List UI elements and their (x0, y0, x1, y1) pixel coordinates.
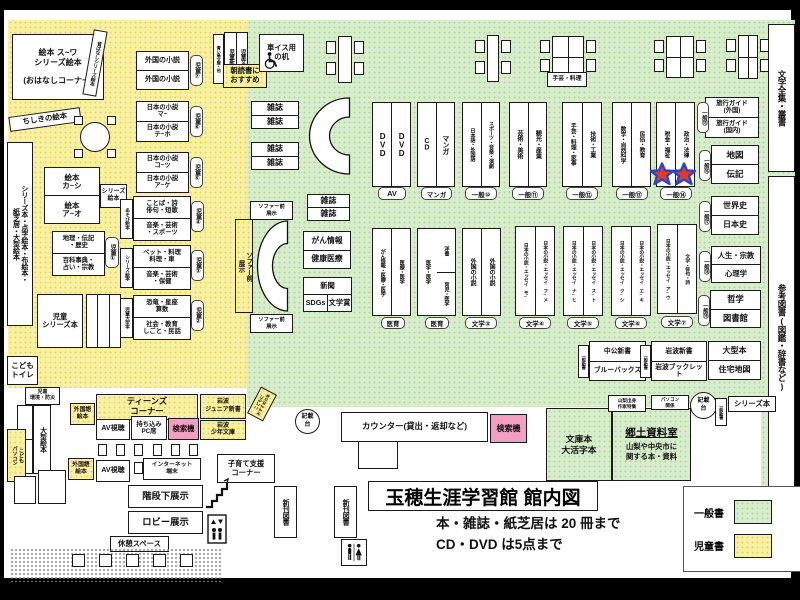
legend: 一般書 児童書 (683, 486, 800, 572)
jinsei-shinri-shelf: 人生・宗教心理学 (711, 246, 761, 283)
series-ehon-side-label-2: シリーズ絵本 (120, 248, 133, 288)
counter-bar: カウンター(貸出・返却など) (341, 412, 488, 442)
legend-swatch-general (734, 500, 772, 524)
chair-square (654, 59, 664, 72)
kaidan-shita-tenji: 階段下展示 (128, 485, 203, 508)
gaikoku-bungaku-shelf: 外国の小説外国の小説 (462, 228, 501, 316)
kamishibai-ogata-strip: シリーズ本・点字絵本・布絵本・紙芝居・大型絵本 (7, 142, 33, 326)
gen16-bubble: 一般⑯ (699, 150, 711, 181)
pet-ryori-shelf: ペット・料理料理・車音楽・芸術・保健 (133, 245, 191, 290)
chair-square (74, 116, 83, 125)
jido2-bubble: 児童② (191, 300, 204, 331)
library-floor-map: 絵本 ス~ワシリーズ絵本 (おはなしコーナー)昔ばなしシリーズ絵本ちしきの絵本シ… (0, 0, 800, 600)
gan-joho-kenko-shelf: がん情報健康医療 (303, 231, 351, 269)
ogata-ehon-strip: 大型絵本 (33, 405, 51, 474)
med-shelf-2: 医学・医学洋書育児・医学 (417, 228, 456, 316)
gen11-shelf: 芸術・美術観光・産業 (509, 102, 547, 187)
ogata-jutaku-shelf: 大型本住宅地図 (708, 341, 761, 380)
wc-icon (341, 539, 367, 566)
jido-kankyo-bosai: 児童環境・防災 (25, 387, 60, 405)
gen12-shelf: 手芸・料理・家事技術・工業 (562, 102, 602, 187)
chair-square (72, 554, 85, 567)
reading-table-1 (326, 36, 364, 83)
chair-square (326, 41, 336, 54)
stairs-icon (204, 478, 230, 510)
loan-limit-note-books: 本・雑誌・紙芝居は 20 冊まで (436, 512, 621, 532)
gen15-bubble: 一般⑮ (697, 102, 709, 133)
iwanami-shonen-bunko: 岩波少年文庫 (200, 420, 246, 440)
chair-square (654, 40, 664, 53)
bun6-bubble: 文学⑥ (615, 317, 647, 329)
chair-square (180, 554, 193, 567)
chair-square (475, 40, 485, 53)
legend-label-general: 一般書 (694, 505, 724, 520)
med2-bubble: 医育 (425, 317, 449, 329)
yamanashi-sakka-label: 山梨出身作家特集 (608, 395, 646, 412)
kyukei-rest-area (10, 548, 221, 582)
kyoryu-seiza-shelf: 恐竜・星座算数社会・教育しごと・民話 (133, 295, 191, 340)
reading-table-2 (475, 35, 511, 82)
reading-table-5 (726, 35, 770, 79)
nihon-shosetsu-ma-shelf: 日本の小説マ~日本の小説テ~ホ (136, 101, 189, 142)
chizu-denki-shelf: 地図伝記 (711, 145, 759, 184)
tegei-ryori-label: 手芸・料理 (547, 72, 587, 87)
zasshi-box-3: 雑誌雑誌 (307, 194, 350, 221)
chair-square (540, 59, 550, 72)
gaikokugo-ehon-2: 外国語絵本 (68, 458, 94, 480)
kotoba-shi-shelf: ことば・詩俳句・短歌音楽・芸術・スポーツ (133, 196, 191, 241)
jido1-bubble: 児童① (105, 237, 119, 268)
counter-leg (358, 441, 398, 469)
gen17-bubble: 一般⑰ (699, 201, 711, 232)
legend-swatch-children (734, 534, 772, 558)
ippan-shinsho-tiny: 一般新書 (715, 398, 727, 426)
reading-table-4 (654, 36, 706, 78)
chair-square (586, 59, 596, 72)
tetsugaku-toshokan-shelf: 哲学図書館 (710, 290, 761, 328)
legend-row-children: 児童書 (694, 534, 800, 558)
chair-square (696, 59, 706, 72)
kodomo-pasokon: こどもパソコン (7, 429, 26, 482)
white-shelf-slats (86, 294, 121, 348)
chair-square (696, 40, 706, 53)
cd-manga-shelf: CDマンガ (417, 102, 455, 187)
series-bon-label: シリーズ本 (728, 396, 776, 412)
bungaku-zenshu-strip: 文学全集・叢書 (768, 24, 795, 172)
med-shelf-1: がん情報・医療・医学医療・医学 (372, 228, 411, 316)
jido6-bubble: 児童⑥ (190, 106, 203, 137)
gen10-shelf: 日本語・外国語スポーツ・音楽・演劇 (462, 102, 500, 187)
jido4-bubble: 児童④ (191, 201, 204, 232)
bun7-shelf: 日本の小説・エッセイ ア~ウ文学・俳句・詩 (657, 224, 697, 314)
sofa-crescent-1 (307, 96, 351, 176)
chair-square (354, 41, 364, 54)
chair-square (501, 40, 511, 53)
chair-square (586, 40, 596, 53)
jido-ogata-side-label: 児童大型本 (120, 298, 133, 338)
chair-square (98, 444, 107, 456)
gen13-shelf: 数学・自然科学民俗・教育 (612, 102, 651, 187)
bunko-ogata-box: 文庫本大活字本 (546, 408, 612, 481)
kisaidai-2: 記載台 (690, 392, 717, 419)
iwanami-shinsho-shelf: 岩波新書岩波ブックレット (651, 341, 707, 381)
gen11-bubble: 一般⑪ (512, 187, 544, 200)
legend-label-children: 児童書 (694, 538, 724, 553)
chair-square (475, 61, 485, 74)
av-shicho-2: AV視聴 (96, 460, 130, 482)
sofa-crescent-2 (255, 219, 289, 313)
sekaishi-nihonshi-shelf: 世界史日本史 (711, 196, 759, 235)
nihon-shosetsu-ko-shelf: 日本の小説コ~ツ日本の小説ア~ケ (136, 152, 189, 193)
jido7-bubble: 児童⑦ (190, 55, 203, 86)
chair-square (107, 149, 116, 158)
chair-square (726, 39, 736, 52)
event-star-2 (672, 162, 696, 186)
sofa-mae-tenji-top: ソファー前展示 (250, 201, 293, 220)
zasshi-box-2: 雑誌雑誌 (251, 142, 299, 170)
bench-1 (14, 476, 36, 504)
chair-square (501, 61, 511, 74)
internet-tanmatsu: インターネット端末 (143, 458, 201, 480)
legend-row-general: 一般書 (694, 500, 800, 524)
bun5-bubble: 文学⑤ (567, 317, 599, 329)
chair-square (99, 554, 112, 567)
chuko-shinsho-shelf: 中公新書ブルーバックス (589, 341, 646, 381)
chair-square (153, 554, 166, 567)
gen14-bubble: 一般⑭ (660, 187, 692, 200)
shinkan-tosho-2: 新刊図書 (334, 486, 357, 538)
ryoko-guide-shelf: 旅行ガイド(外国)旅行ガイド(国内) (705, 97, 759, 138)
av-shicho-1: AV視聴 (96, 419, 130, 440)
av-bubble: AV (378, 187, 406, 200)
mochikomi-pc-seki: 持ち込みPC席 (131, 416, 167, 440)
bun3-bubble: 文学③ (465, 317, 497, 329)
chair-square (116, 444, 125, 456)
bench-2 (38, 470, 66, 504)
ippan-shinsho-side-2: 一般新書 (640, 345, 651, 378)
chiri-hyakka-shelf: 地理・伝記・歴史百科事典・占い・宗教 (52, 231, 105, 276)
asobi-ehon-side-label: あそび絵本 (120, 199, 133, 239)
pasokon-kankei-label: パソコン関係 (651, 395, 689, 410)
wheelchair-icon (261, 51, 280, 70)
gen10-bubble: 一般⑩ (465, 187, 497, 200)
gen18-bubble: 一般⑱ (699, 251, 711, 282)
event-star-1 (650, 162, 674, 186)
chair-square (134, 444, 143, 456)
jido-series-box: 児童シリーズ本 (37, 294, 83, 348)
bun4-bubble: 文学④ (519, 317, 551, 329)
jido5-bubble: 児童⑤ (190, 157, 203, 188)
zasshi-box-1: 雑誌雑誌 (251, 101, 299, 129)
chair-square (189, 444, 198, 456)
bun7-bubble: 文学⑦ (661, 316, 693, 328)
chair-row-1 (98, 444, 198, 456)
chair-square (326, 62, 336, 75)
ippan-shinsho-side-1: 一般新書 (578, 345, 589, 378)
med1-bubble: 医育 (381, 317, 405, 329)
gaikokugo-ehon-1: 外国語絵本 (70, 403, 95, 425)
elevator-icon (207, 514, 227, 544)
page-title: 玉穂生涯学習館 館内図 (368, 481, 598, 511)
gen19-bubble: 一般⑲ (698, 295, 710, 326)
gen13-bubble: 一般⑬ (616, 187, 648, 200)
dvd-shelf: DVDDVD (372, 102, 411, 187)
shinkan-tosho-1: 新刊図書 (274, 486, 297, 538)
jido3-bubble: 児童③ (191, 250, 204, 281)
bun5-shelf: 日本の小説・エッセイ ナ~ヒ日本の小説・エッセイ ス~ト (563, 226, 603, 316)
gen12-bubble: 一般⑫ (566, 187, 598, 200)
kisaidai-1: 記載台 (295, 409, 320, 434)
chair-square (354, 62, 364, 75)
sofa-mae-tenji-strip: ソファー前展示 (235, 219, 253, 313)
chair-square (153, 444, 162, 456)
chair-square (126, 554, 139, 567)
loan-limit-note-av: CD・DVD は5点まで (436, 533, 563, 553)
search-machine-main: 検索機 (490, 414, 527, 443)
bun6-shelf: 日本の小説・エッセイ ク~シ日本の小説・エッセイ エ~キ (611, 226, 651, 316)
gaikoku-shosetsu-jido-shelf: 外国の小説外国の小説 (136, 51, 189, 90)
lobby-tenji: ロビー展示 (128, 511, 203, 534)
search-machine-teens: 検索機 (168, 418, 199, 440)
kyodo-shiryo-room: 郷土資料室山梨や中央市に関する本・資料 (612, 408, 691, 481)
chair-square (74, 149, 83, 158)
chair-square (107, 116, 116, 125)
shinbun-sdgs-shelf: 新聞SDGs文学賞 (303, 277, 352, 312)
chair-square (540, 40, 550, 53)
chair-square (171, 444, 180, 456)
manga-bubble: マンガ (421, 187, 452, 200)
sofa-mae-tenji-bottom: ソファー前展示 (250, 314, 293, 333)
chair-square (726, 59, 736, 72)
iwanami-junior-shinsho: 岩波ジュニア新書 (200, 394, 246, 419)
ehon-shelf: 絵本カ~シ絵本ア~オ (44, 167, 100, 224)
round-table (74, 116, 116, 158)
sanko-tosho-strip: 参考図書(図鑑・辞書など) (768, 176, 795, 498)
bun4-shelf: 日本の小説・エッセイ モ~日本の小説・エッセイ フ~メ (515, 226, 555, 316)
kodomo-toilet: こどもトイレ (7, 356, 38, 385)
